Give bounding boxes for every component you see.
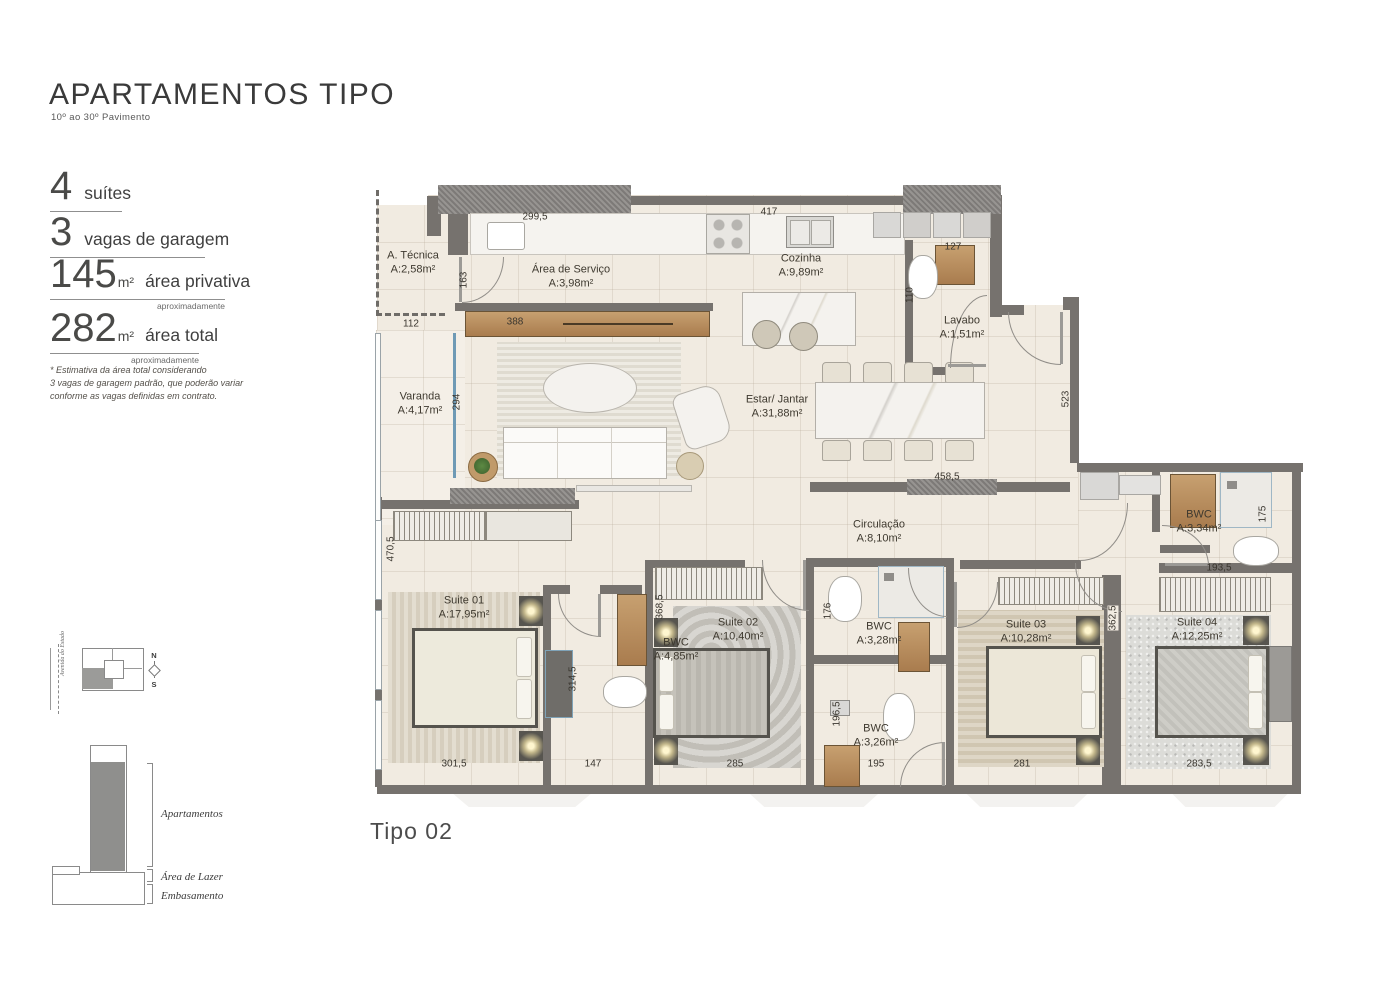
section-label-base: Embasamento xyxy=(161,890,223,902)
bwc3-shower-tray xyxy=(824,745,860,787)
suite04-nightstand-1 xyxy=(1243,616,1269,645)
room-label-suite01: Suite 01A:17,95m² xyxy=(439,594,490,623)
dim-417: 417 xyxy=(761,207,778,218)
dim-196-5: 196,5 xyxy=(832,701,843,726)
cabinet-2 xyxy=(903,212,931,238)
wall-bwc1-top-a xyxy=(543,585,570,594)
floor-plan: A. TécnicaA:2,58m² Área de ServiçoA:3,98… xyxy=(375,185,1303,803)
dim-362-5: 362,5 xyxy=(1108,605,1119,630)
plant-side-table xyxy=(468,452,498,482)
suite01-window-c xyxy=(375,700,382,770)
hall-closet-1 xyxy=(1080,472,1119,500)
wall-bwcmid-right xyxy=(946,558,954,785)
hall-closet-2 xyxy=(1119,475,1161,495)
dim-176: 176 xyxy=(823,603,834,620)
dining-chair-3 xyxy=(904,362,933,383)
lamp-glow xyxy=(1243,616,1269,645)
wall-circulacao-left-structural xyxy=(450,488,575,504)
room-label-suite04: Suite 04A:12,25m² xyxy=(1172,616,1223,645)
ledge-2 xyxy=(745,792,883,807)
suite03-pillow-1 xyxy=(1081,655,1096,692)
section-podium-step xyxy=(52,866,80,875)
sideboard xyxy=(465,311,710,337)
suite01-window-b xyxy=(375,610,382,690)
dim-299-5: 299,5 xyxy=(522,212,547,223)
sliding-pocket-door xyxy=(576,485,692,492)
compass-icon: N S xyxy=(146,651,162,689)
sink-basin-left xyxy=(790,220,810,245)
dim-283-5: 283,5 xyxy=(1186,759,1211,770)
dining-chair-8 xyxy=(945,440,974,461)
spec-private-area-value: 145 xyxy=(50,252,117,296)
outside-patch-2 xyxy=(1078,185,1303,463)
lamp-glow xyxy=(654,736,678,765)
dim-458-5: 458,5 xyxy=(934,472,959,483)
wall-sideboard-back xyxy=(455,303,713,311)
suite03-bed xyxy=(986,646,1102,738)
section-label-leisure: Área de Lazer xyxy=(161,871,223,883)
cabinet-1 xyxy=(873,212,901,238)
compass-north: N xyxy=(151,651,156,660)
ledge-4 xyxy=(1168,792,1292,807)
suite01-nightstand-1 xyxy=(519,596,543,626)
room-label-bwc4: BWCA:3,34m² xyxy=(1177,508,1222,537)
spec-suites: 4suítes xyxy=(50,166,122,212)
sofa xyxy=(503,427,667,479)
dim-127: 127 xyxy=(945,242,962,253)
lamp-glow xyxy=(1243,736,1269,765)
dim-301-5: 301,5 xyxy=(441,759,466,770)
suite03-nightstand-1 xyxy=(1076,616,1100,645)
double-sink xyxy=(786,216,834,248)
dim-147: 147 xyxy=(585,759,602,770)
suite02-nightstand-2 xyxy=(654,736,678,765)
section-tower-fill xyxy=(91,762,125,871)
door-leaf-entry xyxy=(1060,312,1063,364)
dim-523: 523 xyxy=(1061,391,1072,408)
suite01-wardrobe-plain xyxy=(486,511,572,541)
dim-368-5: 368,5 xyxy=(655,594,666,619)
ledge-3 xyxy=(962,792,1092,807)
suite01-wardrobe-hatched xyxy=(393,511,486,541)
suite01-pillow-1 xyxy=(516,637,532,677)
stool-2 xyxy=(789,322,818,351)
suite01-nightstand-2 xyxy=(519,731,543,761)
room-label-atecnica: A. TécnicaA:2,58m² xyxy=(387,249,439,278)
room-label-circulacao: CirculaçãoA:8,10m² xyxy=(853,518,905,547)
spec-parking-value: 3 xyxy=(50,210,72,254)
dim-470-5: 470,5 xyxy=(386,536,397,561)
dining-chair-6 xyxy=(863,440,892,461)
wall-bwcmid-divider xyxy=(806,655,954,664)
wall-top-structural-b xyxy=(903,185,1001,214)
dining-chair-7 xyxy=(904,440,933,461)
suite04-pillow-2 xyxy=(1248,692,1263,729)
compass-south: S xyxy=(146,680,162,689)
dim-285: 285 xyxy=(727,759,744,770)
lamp-glow xyxy=(519,596,543,626)
suite02-wardrobe xyxy=(655,567,763,600)
wall-living-right xyxy=(1070,297,1079,463)
spec-total-area-value: 282 xyxy=(50,306,117,350)
room-label-varanda: VarandaA:4,17m² xyxy=(398,390,443,419)
suite04-bench xyxy=(1269,646,1292,722)
wall-bwc1-top-b xyxy=(600,585,642,594)
dim-195: 195 xyxy=(868,759,885,770)
bracket-leisure xyxy=(147,869,153,882)
dining-chair-1 xyxy=(822,362,851,383)
keyplan-core xyxy=(104,660,124,679)
room-label-cozinha: CozinhaA:9,89m² xyxy=(779,252,824,281)
side-table xyxy=(676,452,704,480)
lamp-glow xyxy=(1076,616,1100,645)
page-subtitle: 10º ao 30º Pavimento xyxy=(51,112,150,123)
bwc4-toilet xyxy=(1233,536,1279,566)
street-label: Avenida do Estado xyxy=(60,631,66,676)
dining-table xyxy=(815,382,985,439)
dim-193-5: 193,5 xyxy=(1206,563,1231,574)
sink-basin-right xyxy=(811,220,831,245)
wall-right-outer xyxy=(1292,463,1301,793)
room-label-bwc3: BWCA:3,26m² xyxy=(854,722,899,751)
room-label-bwc2: BWCA:3,28m² xyxy=(857,620,902,649)
dining-chair-5 xyxy=(822,440,851,461)
room-label-estar-jantar: Estar/ JantarA:31,88m² xyxy=(746,393,808,422)
section-podium xyxy=(52,872,145,905)
coffee-table xyxy=(543,363,637,413)
plan-type-label: Tipo 02 xyxy=(370,818,453,845)
suite01-window-a xyxy=(375,520,382,600)
spec-suites-value: 4 xyxy=(50,164,72,208)
door-leaf-bwc1 xyxy=(598,594,601,636)
door-leaf-suite02 xyxy=(803,560,806,610)
wall-atecnica-right xyxy=(448,207,468,255)
dim-281: 281 xyxy=(1014,759,1031,770)
room-label-suite02: Suite 02A:10,40m² xyxy=(713,616,764,645)
suite04-pillow-1 xyxy=(1248,655,1263,692)
dim-388: 388 xyxy=(507,317,524,328)
bwc1-toilet xyxy=(603,676,647,708)
room-label-servico: Área de ServiçoA:3,98m² xyxy=(532,263,610,292)
sofa-cushion-line-2 xyxy=(611,428,612,478)
sofa-cushion-line-1 xyxy=(557,428,558,478)
stool-1 xyxy=(752,320,781,349)
dim-294: 294 xyxy=(452,394,463,411)
street-dashed-line xyxy=(58,644,59,714)
dining-chair-2 xyxy=(863,362,892,383)
section-label-apartments: Apartamentos xyxy=(161,808,223,820)
plant-icon xyxy=(474,458,490,474)
bracket-base xyxy=(147,884,153,904)
compass-diamond xyxy=(148,664,161,677)
door-leaf-bwc3 xyxy=(942,742,945,786)
spec-private-area: 145m²área privativa aproximadamente xyxy=(50,254,225,300)
shower-head-icon xyxy=(884,573,894,581)
dim-163: 163 xyxy=(459,272,470,289)
door-leaf-bwc4 xyxy=(1165,563,1208,566)
shower-head-icon xyxy=(1227,481,1237,489)
suite04-nightstand-2 xyxy=(1243,736,1269,765)
suite03-nightstand-2 xyxy=(1076,736,1100,765)
cabinet-3 xyxy=(933,212,961,238)
ledge-1 xyxy=(448,792,596,807)
suite04-bed xyxy=(1155,646,1269,738)
door-leaf-suite03 xyxy=(954,582,957,627)
wall-suite03-top xyxy=(960,560,1081,569)
spec-total-area: 282m²área total aproximadamente xyxy=(50,308,199,354)
sofa-back xyxy=(504,428,666,443)
cabinet-4 xyxy=(963,212,991,238)
dim-112: 112 xyxy=(403,319,419,330)
suite04-wardrobe xyxy=(1159,577,1271,612)
bwc2-vanity xyxy=(898,622,930,672)
wall-rightwing-top xyxy=(1077,463,1303,472)
floorplan-sheet: APARTAMENTOS TIPO 10º ao 30º Pavimento 4… xyxy=(0,0,1400,990)
room-label-bwc1: BWCA:4,85m² xyxy=(654,636,699,665)
cooktop xyxy=(706,214,750,254)
bracket-apartments xyxy=(147,763,153,867)
suite03-pillow-2 xyxy=(1081,692,1096,729)
wall-top-structural-a xyxy=(438,185,631,214)
street-line xyxy=(50,648,51,710)
dim-314-5: 314,5 xyxy=(568,666,579,691)
lamp-glow xyxy=(519,731,543,761)
room-label-lavabo: LavaboA:1,51m² xyxy=(940,314,985,343)
suite01-pillow-2 xyxy=(516,679,532,719)
outside-patch-1 xyxy=(1002,185,1082,305)
tv-on-sideboard xyxy=(563,323,672,325)
bwc1-vanity xyxy=(617,594,647,666)
door-leaf-lavabo xyxy=(948,364,986,367)
lamp-glow xyxy=(1076,736,1100,765)
dim-175: 175 xyxy=(1258,506,1269,523)
page-title: APARTAMENTOS TIPO xyxy=(49,78,395,112)
suite02-pillow-2 xyxy=(659,694,674,730)
varanda-window xyxy=(375,333,381,521)
dim-110: 110 xyxy=(905,287,916,303)
suite01-bed xyxy=(412,628,538,728)
room-label-suite03: Suite 03A:10,28m² xyxy=(1001,618,1052,647)
service-sink xyxy=(487,222,525,250)
disclaimer-note: * Estimativa da área total considerando … xyxy=(50,364,243,403)
